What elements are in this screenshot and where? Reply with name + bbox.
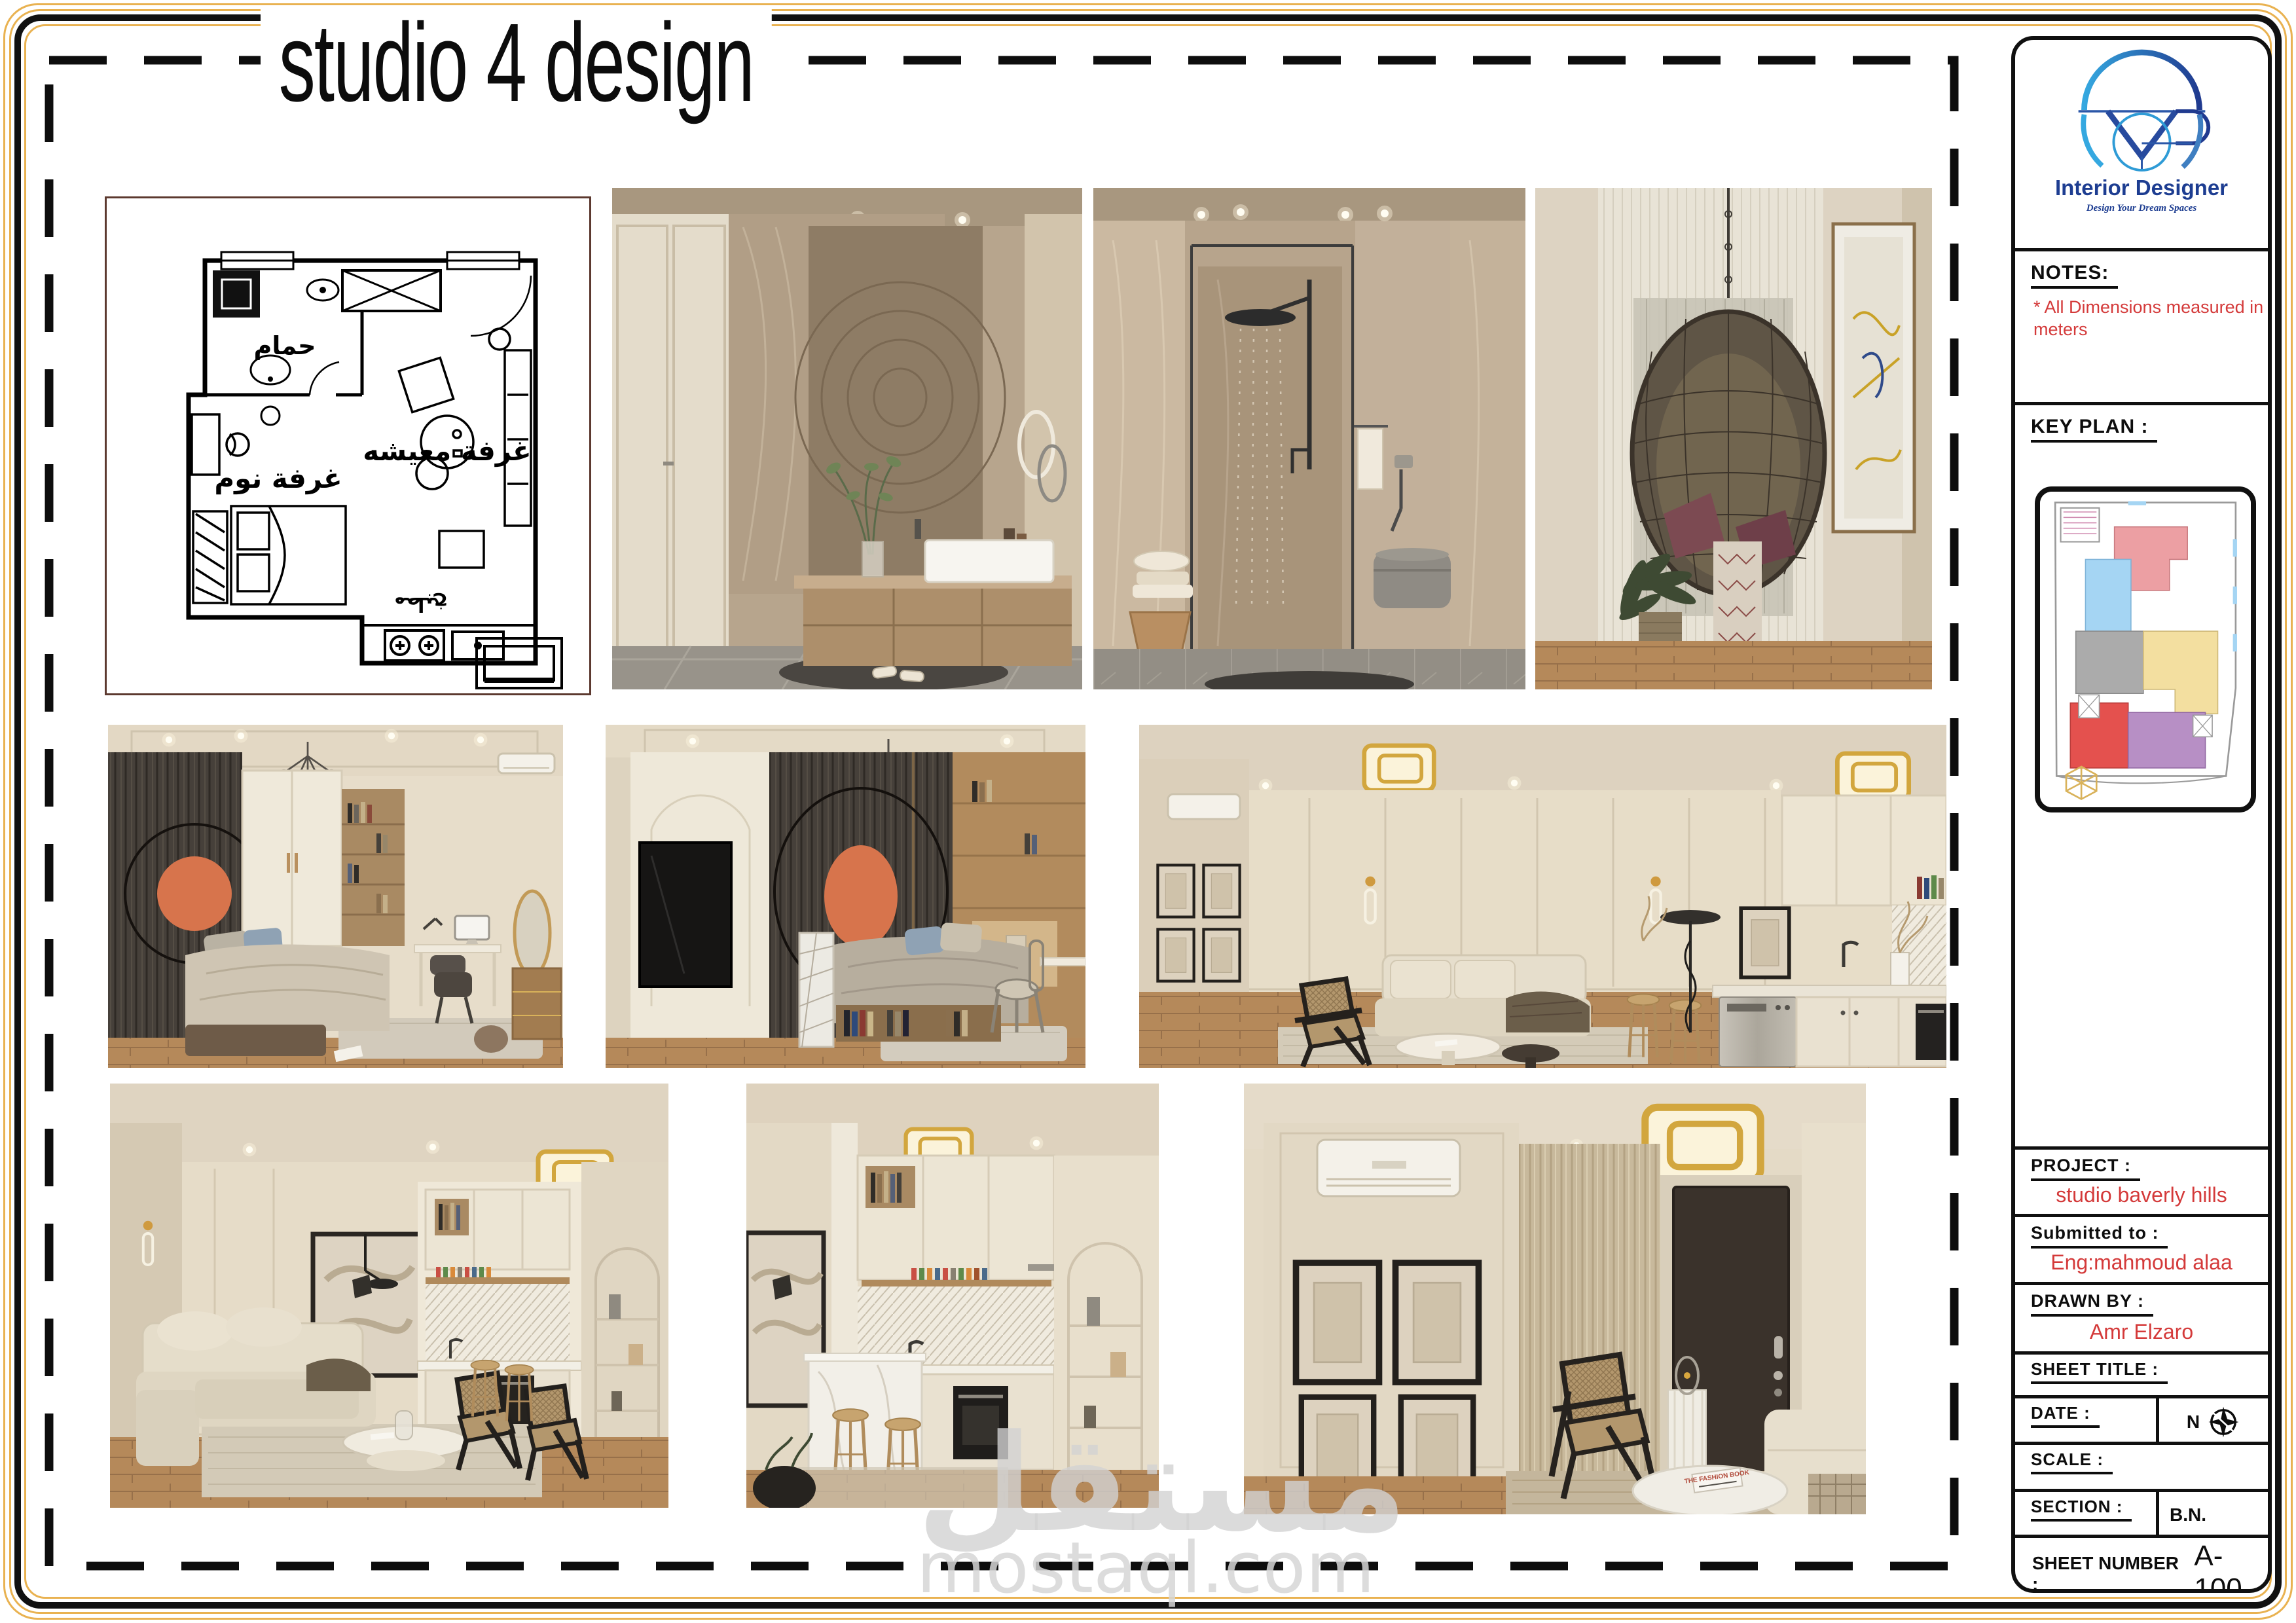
scale-section: SCALE : xyxy=(2015,1442,2268,1492)
brand-section: Interior Designer Design Your Dream Spac… xyxy=(2015,40,2268,248)
svg-text:غرفة معيشه: غرفة معيشه xyxy=(363,435,531,467)
render-bedroom-desk xyxy=(108,725,563,1068)
brand-logo-icon xyxy=(2068,49,2215,172)
page-title: studio 4 design xyxy=(261,7,772,120)
brand-name: Interior Designer xyxy=(2015,177,2268,198)
sheet-number-label: SHEET NUMBER : xyxy=(2032,1553,2183,1594)
submitted-to-section: Submitted to : Eng:mahmoud alaa xyxy=(2015,1214,2268,1285)
brand-tagline: Design Your Dream Spaces xyxy=(2015,202,2268,214)
project-label: PROJECT : xyxy=(2031,1156,2140,1181)
sheet-title-label: SHEET TITLE : xyxy=(2031,1360,2168,1384)
render-kitchen xyxy=(746,1084,1159,1508)
notes-label: NOTES: xyxy=(2031,262,2118,289)
north-cell: N xyxy=(2156,1398,2268,1445)
north-label: N xyxy=(2187,1412,2200,1432)
project-value: studio baverly hills xyxy=(2015,1184,2268,1207)
drawn-by-value: Amr Elzaro xyxy=(2015,1321,2268,1343)
section-section: SECTION : B.N. xyxy=(2015,1489,2268,1538)
title-block: Interior Designer Design Your Dream Spac… xyxy=(2011,36,2272,1593)
svg-text:غرفة نوم: غرفة نوم xyxy=(214,462,342,495)
page-title-text: studio 4 design xyxy=(261,7,772,120)
floor-plan-drawing: حمام غرفة نوم غرفة معيشه مطبخ xyxy=(105,196,591,695)
drawn-by-section: DRAWN BY : Amr Elzaro xyxy=(2015,1282,2268,1355)
scale-label: SCALE : xyxy=(2031,1450,2113,1474)
submitted-to-value: Eng:mahmoud alaa xyxy=(2015,1251,2268,1274)
project-section: PROJECT : studio baverly hills xyxy=(2015,1146,2268,1217)
drawing-sheet: studio 4 design xyxy=(0,0,2296,1623)
render-shower-room xyxy=(1093,188,1525,689)
date-section: DATE : N xyxy=(2015,1395,2268,1445)
render-bathroom-vanity xyxy=(612,188,1082,689)
sheet-number-section: SHEET NUMBER : A-100 xyxy=(2015,1535,2268,1592)
north-compass-icon xyxy=(2206,1405,2240,1439)
drawn-by-label: DRAWN BY : xyxy=(2031,1292,2153,1317)
key-plan-drawing xyxy=(2035,486,2256,812)
sheet-number-value: A-100 xyxy=(2194,1540,2268,1594)
section-label: SECTION : xyxy=(2031,1497,2132,1522)
render-hanging-chair-corner xyxy=(1535,188,1932,689)
notes-item: * All Dimensions measured in meters xyxy=(2033,297,2268,341)
svg-text:مطبخ: مطبخ xyxy=(394,593,448,615)
key-plan-section: KEY PLAN : xyxy=(2015,402,2268,1150)
section-value: B.N. xyxy=(2170,1504,2206,1525)
render-bedroom-tv-wall xyxy=(606,725,1085,1068)
submitted-to-label: Submitted to : xyxy=(2031,1224,2168,1249)
notes-section: NOTES: * All Dimensions measured in mete… xyxy=(2015,248,2268,405)
render-entry-hall: THE FASHION BOOK xyxy=(1244,1084,1866,1514)
svg-text:حمام: حمام xyxy=(254,331,316,361)
key-plan-label: KEY PLAN : xyxy=(2031,416,2157,443)
date-label: DATE : xyxy=(2031,1404,2100,1428)
section-value-cell: B.N. xyxy=(2156,1492,2268,1538)
render-living-room xyxy=(110,1084,668,1508)
sheet-title-section: SHEET TITLE : xyxy=(2015,1351,2268,1398)
render-living-kitchen-wide xyxy=(1139,725,1946,1068)
